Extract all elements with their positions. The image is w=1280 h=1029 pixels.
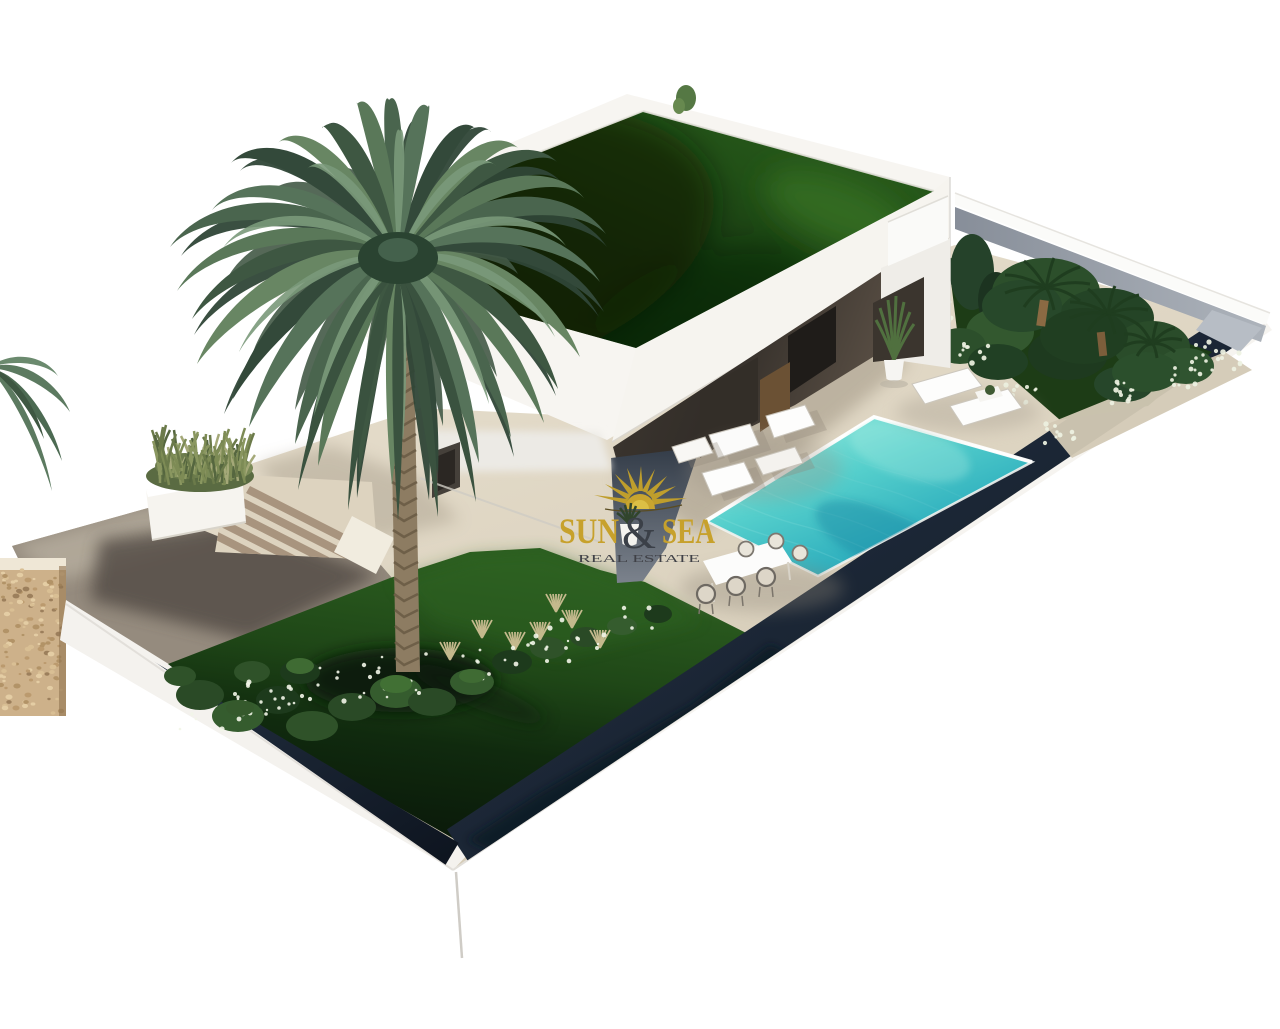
svg-text:SEA: SEA (662, 511, 715, 551)
svg-text:SUN: SUN (559, 511, 619, 551)
svg-text:REAL ESTATE: REAL ESTATE (578, 554, 700, 565)
svg-text:&: & (622, 507, 656, 558)
